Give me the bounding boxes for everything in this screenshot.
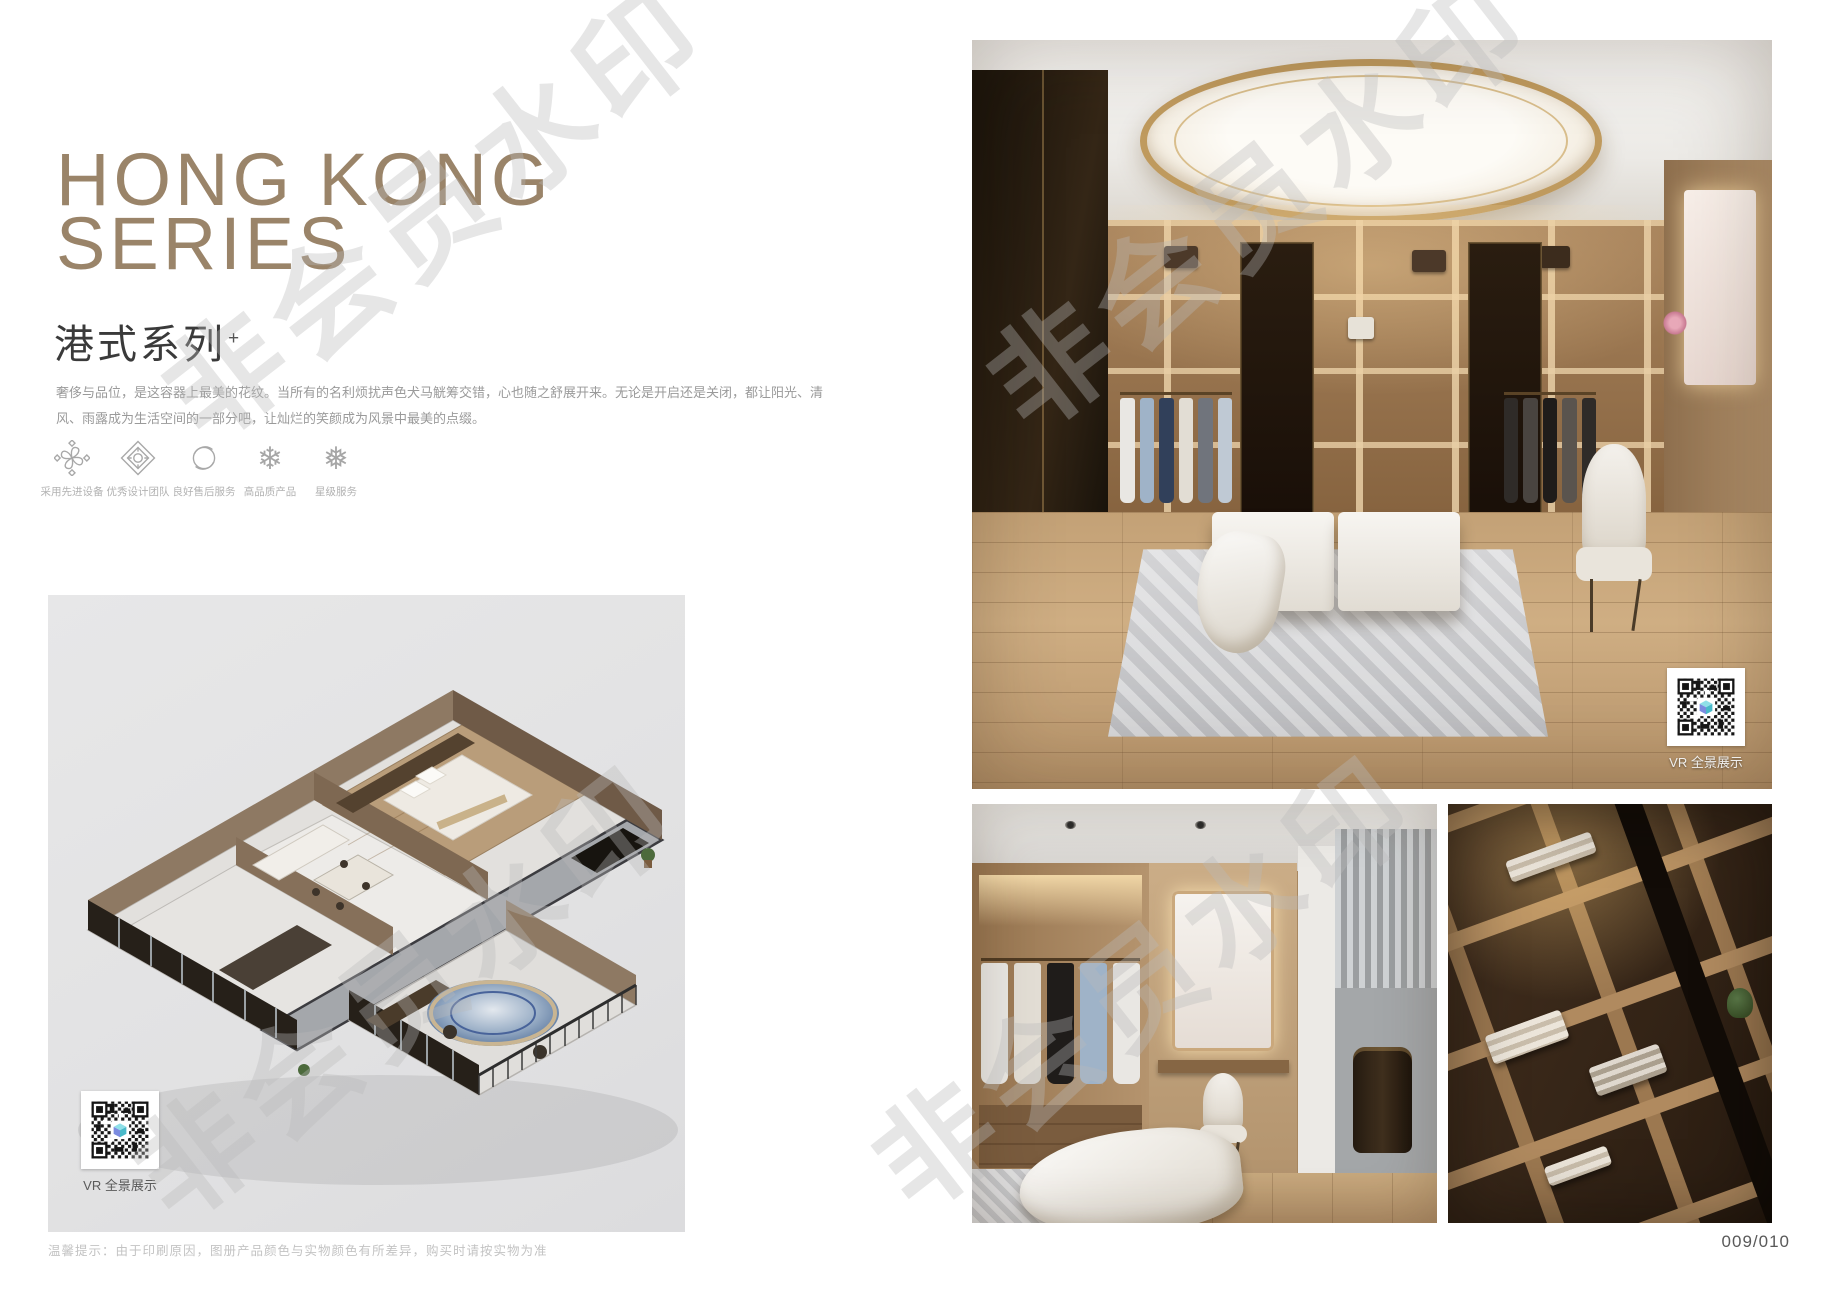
vr-panorama-label: VR 全景展示 bbox=[1664, 752, 1748, 771]
vr-qr-code-floorplan: VR 全景展示 bbox=[78, 1091, 162, 1194]
feature-label: 星级服务 bbox=[304, 484, 368, 499]
photo-vignette bbox=[1448, 804, 1772, 1223]
snowflake-icon: ❄ bbox=[238, 440, 302, 480]
series-title: HONG KONG SERIES bbox=[56, 148, 552, 276]
qr-code-image bbox=[1667, 668, 1745, 746]
ornate-snowflake-icon: ❅ bbox=[304, 440, 368, 480]
qr-code-image bbox=[81, 1091, 159, 1169]
feature-label: 采用先进设备 bbox=[40, 484, 104, 499]
shelf-closeup-photo bbox=[1448, 804, 1772, 1223]
feature-item-equipment: 采用先进设备 bbox=[40, 440, 104, 499]
feature-list: 采用先进设备 优秀设计团队 bbox=[40, 440, 368, 499]
feature-item-quality: ❄ 高品质产品 bbox=[238, 440, 302, 499]
catalog-spread: HONG KONG SERIES 港式系列+ 奢侈与品位，是这容器上最美的花纹。… bbox=[0, 0, 1836, 1307]
series-description: 奢侈与品位，是这容器上最美的花纹。当所有的名利烦扰声色犬马觥筹交错，心也随之舒展… bbox=[56, 380, 823, 432]
dressing-area-photo bbox=[972, 804, 1437, 1223]
feature-item-after-sales: 良好售后服务 bbox=[172, 440, 236, 499]
page-number: 009/010 bbox=[1722, 1232, 1790, 1252]
series-subtitle-cn: 港式系列+ bbox=[54, 312, 242, 370]
subtitle-text: 港式系列 bbox=[54, 323, 226, 367]
description-line-2: 风、雨露成为生活空间的一部分吧，让灿烂的笑颜成为风景中最美的点缀。 bbox=[56, 406, 823, 432]
feature-label: 高品质产品 bbox=[238, 484, 302, 499]
photo-vignette bbox=[972, 40, 1772, 789]
footer-note: 温馨提示：由于印刷原因，图册产品颜色与实物颜色有所差异，购买时请按实物为准 bbox=[48, 1240, 548, 1259]
subtitle-plus: + bbox=[228, 328, 242, 349]
vr-qr-code-photo: VR 全景展示 bbox=[1664, 668, 1748, 771]
pinwheel-flower-icon bbox=[40, 440, 104, 480]
title-line-2: SERIES bbox=[56, 212, 552, 276]
floorplan-image: VR 全景展示 bbox=[48, 595, 685, 1232]
wardrobe-room-photo: VR 全景展示 bbox=[972, 40, 1772, 789]
feature-item-design-team: 优秀设计团队 bbox=[106, 440, 170, 499]
feature-label: 良好售后服务 bbox=[172, 484, 236, 499]
diamond-rosette-icon bbox=[106, 440, 170, 480]
photo-vignette bbox=[972, 804, 1437, 1223]
ring-swirl-icon bbox=[172, 440, 236, 480]
feature-item-star-service: ❅ 星级服务 bbox=[304, 440, 368, 499]
vr-panorama-label: VR 全景展示 bbox=[78, 1175, 162, 1194]
description-line-1: 奢侈与品位，是这容器上最美的花纹。当所有的名利烦扰声色犬马觥筹交错，心也随之舒展… bbox=[56, 380, 823, 406]
feature-label: 优秀设计团队 bbox=[106, 484, 170, 499]
